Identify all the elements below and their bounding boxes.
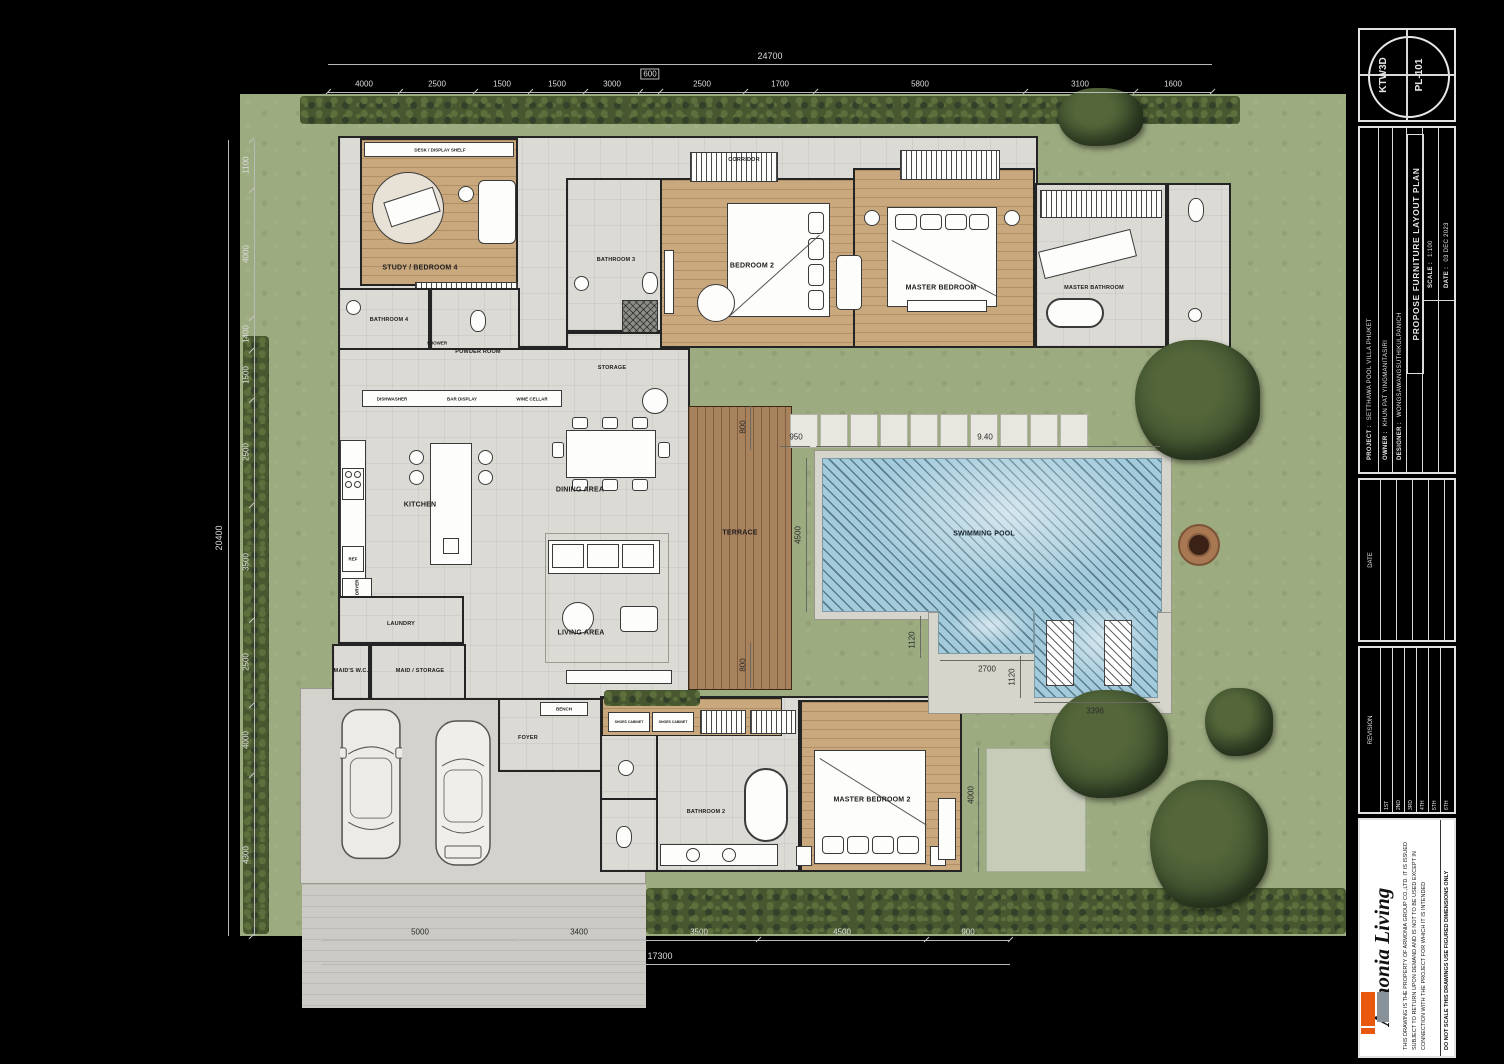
pillow xyxy=(822,836,844,854)
dim-top-0: 4000 xyxy=(355,80,373,89)
revision-1: 1ST xyxy=(1382,772,1393,810)
scale-field: SCALE :1:100 xyxy=(1424,132,1439,298)
bar-display-label: BAR DISPLAY xyxy=(447,397,477,402)
room-label-foyer: FOYER xyxy=(518,735,538,741)
stepping-stone xyxy=(790,414,818,448)
date-field: DATE :03 DEC 2023 xyxy=(1440,132,1455,298)
dim-left-6: 2500 xyxy=(242,653,251,671)
car-2-icon xyxy=(432,718,494,868)
dim-terrace-bottom: 800 xyxy=(739,658,748,671)
dining-chair xyxy=(572,417,588,429)
car-1-icon xyxy=(340,706,402,862)
dim-top-6: 2500 xyxy=(693,80,711,89)
date-label: DATE : xyxy=(1444,267,1450,288)
fridge-label: REF xyxy=(349,557,358,562)
revision-2: 2ND xyxy=(1394,772,1405,810)
sofa-cushion xyxy=(587,544,619,568)
stamp-code: KTW3D xyxy=(1376,46,1392,104)
rev-divider xyxy=(1380,648,1381,812)
bathtub-master xyxy=(1046,298,1104,328)
sink-bathroom4 xyxy=(346,300,361,315)
designer-label: DESIGNER : xyxy=(1397,422,1403,460)
dim-line xyxy=(806,458,807,612)
stepping-stone xyxy=(940,414,968,448)
dim-line xyxy=(978,748,979,872)
dim-patio: 4000 xyxy=(967,786,976,804)
tree xyxy=(1058,88,1143,146)
scale-label: SCALE : xyxy=(1428,262,1434,288)
dim-left-0: 1100 xyxy=(242,156,251,173)
room-label-maid-storage: MAID / STORAGE xyxy=(396,668,445,674)
project-value: SETTHAWA POOL VILLA PHUKET xyxy=(1367,318,1373,420)
dim-top-8: 5800 xyxy=(911,80,929,89)
study-side-table xyxy=(458,186,474,202)
dim-lounger: 3396 xyxy=(1086,707,1104,716)
dim-pool-length: 9.40 xyxy=(977,433,993,442)
dim-left-4: 2500 xyxy=(242,443,251,461)
tree xyxy=(1150,780,1268,908)
grid-divider xyxy=(1412,480,1413,640)
wardrobe-master-bathroom xyxy=(1040,190,1162,218)
dining-table xyxy=(566,430,656,478)
stool xyxy=(478,450,493,465)
sink xyxy=(686,848,700,862)
dim-left-8: 4300 xyxy=(242,846,251,864)
dim-top-5: 600 xyxy=(640,69,659,80)
fire-bowl-center xyxy=(1187,533,1211,557)
cabinet-master2 xyxy=(938,798,956,860)
dim-bottom-3: 4500 xyxy=(833,928,851,937)
grid-divider xyxy=(1444,480,1445,640)
room-label-maids-wc: MAID'S W.C. xyxy=(334,668,369,674)
pillow xyxy=(895,214,917,230)
brand-square-orange-small xyxy=(1361,1028,1375,1034)
dim-bottom-2: 3500 xyxy=(690,928,708,937)
revision-4: 4TH xyxy=(1418,772,1429,810)
armchair-master xyxy=(836,255,862,310)
room-label-terrace: TERRACE xyxy=(722,530,757,537)
date-value: 03 DEC 2023 xyxy=(1444,222,1450,261)
stepping-stone xyxy=(970,414,998,448)
room-label-powder: POWDER ROOM xyxy=(455,349,501,355)
burner xyxy=(345,471,352,478)
pool-lounger xyxy=(1046,620,1074,686)
room-label-master-bathroom: MASTER BATHROOM xyxy=(1064,285,1124,291)
shower-label: SHOWER xyxy=(427,341,447,346)
dim-bottom-4: 900 xyxy=(961,928,974,937)
dim-left-2: 1400 xyxy=(242,325,251,343)
room-label-living: LIVING AREA xyxy=(557,630,604,637)
dim-line xyxy=(228,140,229,936)
dim-bottom-0: 5000 xyxy=(411,928,429,937)
revision-label: REVISION xyxy=(1364,650,1378,810)
hedge-left xyxy=(243,336,269,934)
stepping-stone xyxy=(850,414,878,448)
dim-top-2: 1500 xyxy=(493,80,511,89)
pillow xyxy=(897,836,919,854)
dining-chair xyxy=(602,417,618,429)
grid-divider xyxy=(1380,480,1381,640)
scale-value: 1:100 xyxy=(1428,240,1434,257)
sofa-cushion xyxy=(552,544,584,568)
toilet-suite xyxy=(616,826,632,848)
dining-chair xyxy=(552,442,564,458)
bathtub-bathroom2 xyxy=(744,768,788,842)
sink xyxy=(722,848,736,862)
island-sink xyxy=(443,538,459,554)
suite-wardrobe xyxy=(750,710,796,734)
dim-notch-b: 2700 xyxy=(978,665,996,674)
revision-5: 5TH xyxy=(1430,772,1441,810)
stepping-stone xyxy=(910,414,938,448)
dim-line xyxy=(254,140,255,936)
dim-top-7: 1700 xyxy=(771,80,789,89)
ceiling-fan-icon xyxy=(864,210,880,226)
stool xyxy=(478,470,493,485)
dim-left-3: 1500 xyxy=(242,366,251,384)
dim-line xyxy=(780,446,810,447)
owner-value: KHUN PAT YINGMANITASIRI xyxy=(1383,340,1389,426)
revision-6: 6TH xyxy=(1442,772,1453,810)
dim-top-1: 2500 xyxy=(428,80,446,89)
brand-square-orange xyxy=(1361,992,1375,1026)
tree xyxy=(1135,340,1260,460)
shower-head-icon xyxy=(618,760,634,776)
suite-wardrobe xyxy=(700,710,746,734)
room-laundry xyxy=(338,596,464,644)
toilet-bathroom3 xyxy=(642,272,658,294)
dim-left-7: 4000 xyxy=(242,731,251,749)
terrace-deck xyxy=(688,406,792,690)
pillow xyxy=(808,290,824,310)
driveway xyxy=(302,884,646,1008)
dim-line xyxy=(322,940,1010,941)
dim-top-10: 1600 xyxy=(1164,80,1182,89)
room-label-laundry: LAUNDRY xyxy=(387,621,415,627)
brand-square-gray xyxy=(1377,992,1389,1022)
dining-chair xyxy=(632,479,648,491)
pool-lounger xyxy=(1104,620,1132,686)
grid-divider xyxy=(1428,480,1429,640)
designer-value: WONGSAWANGSUTHIKULPANICH xyxy=(1397,312,1403,417)
dim-line xyxy=(750,406,751,450)
room-label-dining: DINING AREA xyxy=(556,487,604,494)
dim-top-4: 3000 xyxy=(603,80,621,89)
dim-line xyxy=(816,446,1160,447)
toilet-powder xyxy=(470,310,486,332)
wine-cellar-label: WINE CELLAR xyxy=(516,397,547,402)
pillow xyxy=(808,212,824,234)
owner-field: OWNER :KHUN PAT YINGMANITASIRI xyxy=(1379,132,1394,470)
room-label-corridor: CORRIDOR xyxy=(728,157,760,163)
pillow xyxy=(920,214,942,230)
floor-lamp xyxy=(642,388,668,414)
bench-label: BENCH xyxy=(556,707,572,712)
room-label-bathroom4: BATHROOM 4 xyxy=(370,317,409,323)
armchair-bedroom2 xyxy=(697,284,735,322)
room-label-kitchen: KITCHEN xyxy=(404,502,437,509)
burner xyxy=(354,471,361,478)
sofa-cushion xyxy=(622,544,654,568)
dim-top-3: 1500 xyxy=(548,80,566,89)
stool xyxy=(409,450,424,465)
stepping-stone xyxy=(820,414,848,448)
room-label-pool: SWIMMING POOL xyxy=(953,531,1015,538)
dishwasher-label: DISHWASHER xyxy=(377,397,408,402)
stamp-divider-h xyxy=(1360,74,1454,76)
designer-field: DESIGNER :WONGSAWANGSUTHIKULPANICH xyxy=(1393,132,1408,470)
dim-line xyxy=(328,92,1212,93)
pillow xyxy=(969,214,989,230)
tree xyxy=(1205,688,1273,756)
disclaimer-text: THIS DRAWING IS THE PROPERTY OF ARMONIA … xyxy=(1402,824,1440,1050)
stepping-stone xyxy=(1030,414,1058,448)
shoes-cabinet-label: SHOES CABINET xyxy=(659,720,688,724)
vanity-bathroom2 xyxy=(660,844,778,866)
pillow xyxy=(872,836,894,854)
wall xyxy=(600,798,658,800)
toilet-master xyxy=(1188,198,1204,222)
revision-3: 3RD xyxy=(1406,772,1417,810)
stepping-stone xyxy=(1000,414,1028,448)
room-label-storage: STORAGE xyxy=(598,365,627,371)
dim-terrace-top: 800 xyxy=(739,420,748,433)
dining-chair xyxy=(632,417,648,429)
date-section-label: DATE xyxy=(1364,482,1378,638)
dim-stepping: 950 xyxy=(789,433,802,442)
pool-shallow xyxy=(938,610,1034,654)
dim-line xyxy=(920,616,921,658)
project-field: PROJECT :SETTHAWA POOL VILLA PHUKET xyxy=(1363,132,1378,470)
dim-bottom-overall: 17300 xyxy=(647,951,672,961)
ottoman xyxy=(620,606,658,632)
dim-pool-width: 4500 xyxy=(794,526,803,544)
wall xyxy=(656,736,658,872)
dim-line xyxy=(1034,702,1160,703)
project-label: PROJECT : xyxy=(1367,425,1373,460)
dim-line xyxy=(328,64,1212,65)
no-scale-note: DO NOT SCALE THIS DRAWINGS USE FIGURED D… xyxy=(1443,824,1455,1050)
ceiling-fan-icon xyxy=(1004,210,1020,226)
tree xyxy=(1050,690,1168,798)
tick xyxy=(1008,937,1014,943)
dim-bottom-1: 3400 xyxy=(570,928,588,937)
sink-bathroom3 xyxy=(574,276,589,291)
tv-console xyxy=(566,670,672,684)
dining-chair xyxy=(658,442,670,458)
burner xyxy=(345,481,352,488)
dim-left-5: 3500 xyxy=(242,553,251,571)
bed-bench-master xyxy=(907,300,987,312)
desk-shelf-label: DESK / DISPLAY SHELF xyxy=(414,148,465,153)
dim-left-1: 4000 xyxy=(242,245,251,263)
stepping-stone xyxy=(1060,414,1088,448)
dim-line xyxy=(750,642,751,688)
room-label-study: STUDY / BEDROOM 4 xyxy=(382,265,457,272)
pillow xyxy=(808,264,824,286)
dim-line xyxy=(322,964,1010,965)
stool xyxy=(409,470,424,485)
stamp-sheet-number: PL-101 xyxy=(1412,46,1428,104)
room-label-bathroom3: BATHROOM 3 xyxy=(597,257,636,263)
planter-suite xyxy=(604,690,700,706)
dim-top-9: 3100 xyxy=(1071,80,1089,89)
dim-left-overall: 20400 xyxy=(214,525,224,550)
tv-cabinet-bedroom2 xyxy=(664,250,674,314)
room-label-bathroom2: BATHROOM 2 xyxy=(687,809,726,815)
pillow xyxy=(847,836,869,854)
brand-divider xyxy=(1440,820,1441,1056)
stepping-stone xyxy=(880,414,908,448)
grid-divider xyxy=(1396,480,1397,640)
drawing-title: PROPOSE FURNITURE LAYOUT PLAN xyxy=(1407,134,1424,374)
room-label-master-bedroom: MASTER BEDROOM xyxy=(906,285,977,292)
floor-plan-sheet: DESK / DISPLAY SHELF DISHWASHER BAR DISP… xyxy=(0,0,1504,1064)
dim-top-overall: 24700 xyxy=(757,51,782,61)
room-label-master-bedroom2: MASTER BEDROOM 2 xyxy=(833,797,910,804)
sink-toilet-room xyxy=(1188,308,1202,322)
owner-label: OWNER : xyxy=(1383,431,1389,460)
shoes-cabinet-label: SHOES CABINET xyxy=(615,720,644,724)
info-divider xyxy=(1422,300,1454,301)
dim-notch-c: 1120 xyxy=(1008,668,1017,685)
burner xyxy=(354,481,361,488)
room-label-bedroom2: BEDROOM 2 xyxy=(730,263,774,270)
dining-chair xyxy=(602,479,618,491)
dim-notch-a: 1120 xyxy=(908,631,917,648)
study-daybed xyxy=(478,180,516,244)
wardrobe-master xyxy=(900,150,1000,180)
nightstand xyxy=(796,846,812,866)
dim-line xyxy=(1020,656,1021,698)
pillow xyxy=(945,214,967,230)
